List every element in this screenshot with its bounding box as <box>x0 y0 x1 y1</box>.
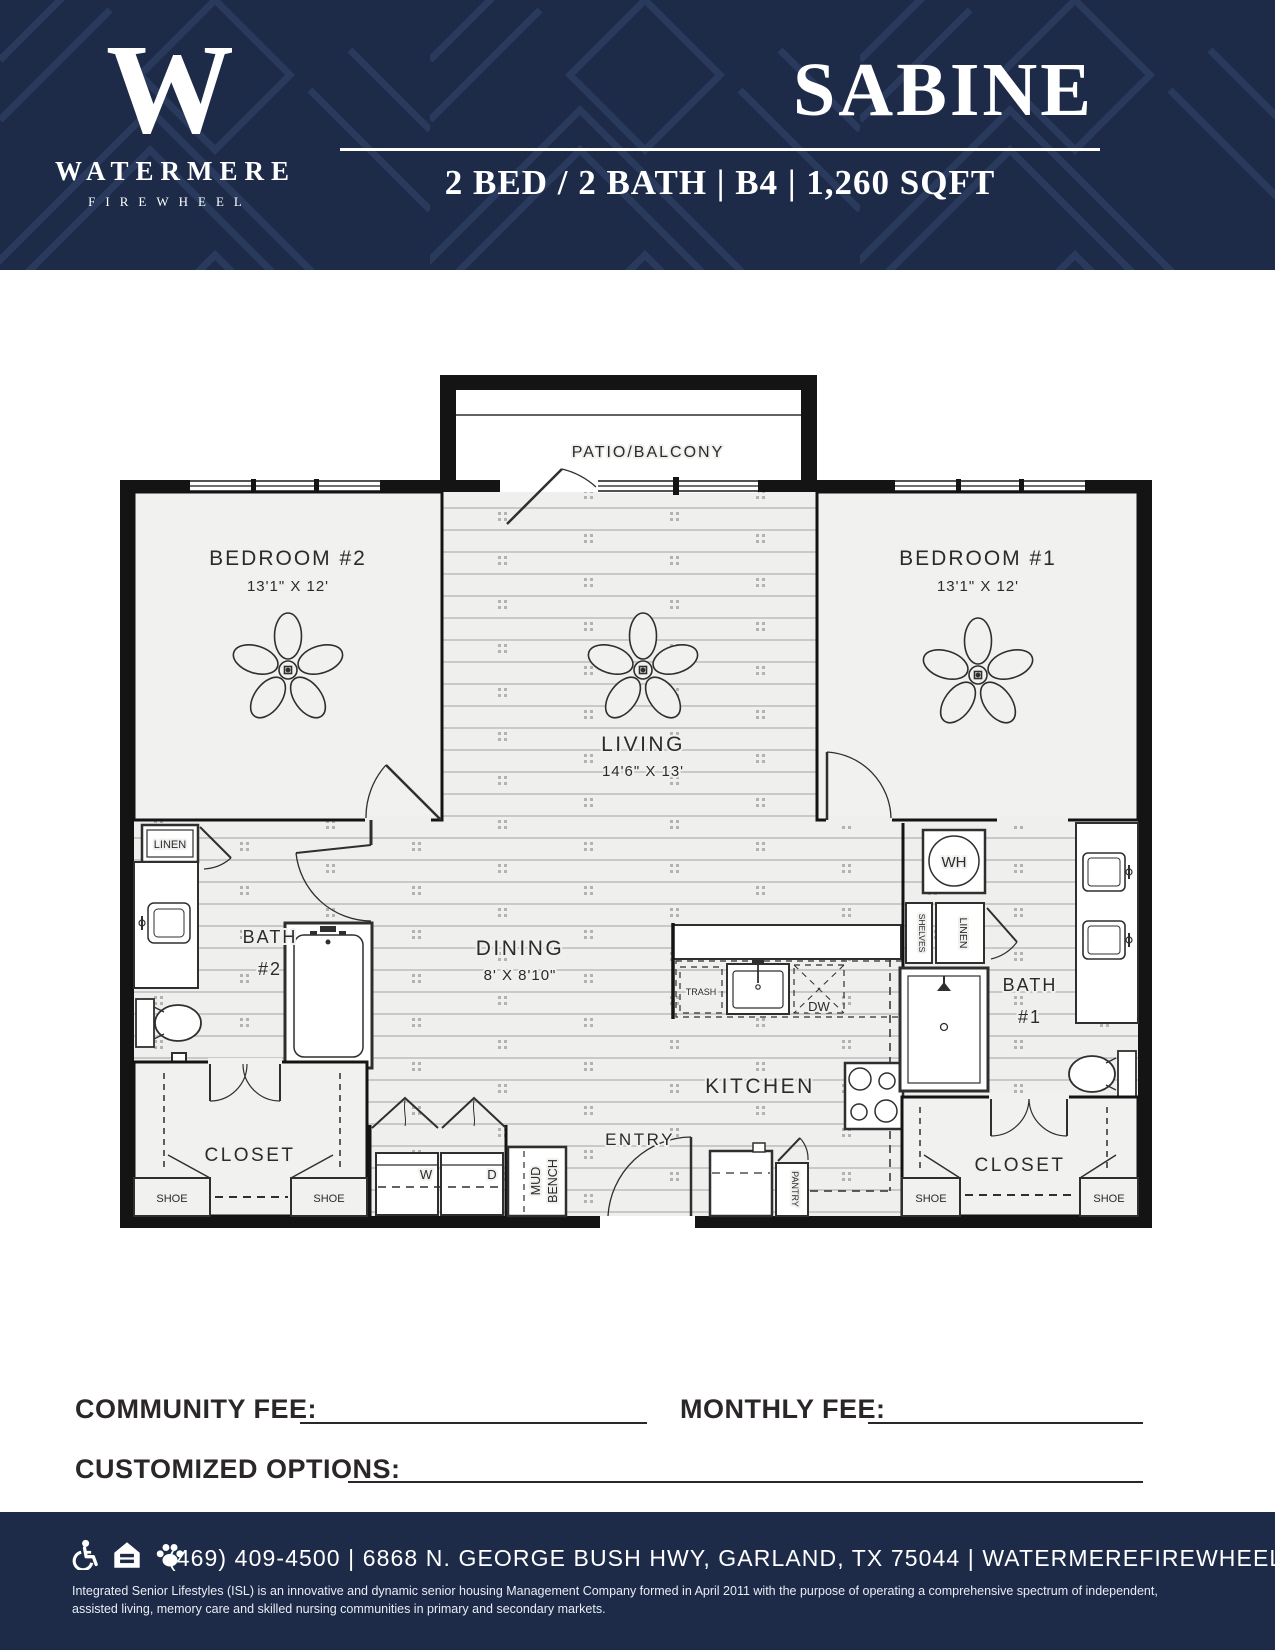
brand-name: WATERMERE <box>55 156 285 187</box>
shower <box>900 968 988 1091</box>
refrigerator <box>710 1143 772 1216</box>
bathtub <box>285 923 372 1068</box>
brand-subname: FIREWHEEL <box>55 194 285 210</box>
bedroom-2: BEDROOM #2 13'1" X 12' <box>134 492 442 824</box>
header-banner: W WATERMERE FIREWHEEL SABINE 2 BED / 2 B… <box>0 0 1275 270</box>
bench-label: BENCH <box>546 1159 560 1203</box>
patio-balcony <box>440 375 817 492</box>
dw-label: DW <box>808 999 830 1014</box>
shoe-label: SHOE <box>1093 1193 1124 1205</box>
wheelchair-icon <box>70 1539 99 1570</box>
equal-housing-icon <box>112 1540 142 1570</box>
community-fee-blank[interactable] <box>300 1422 647 1424</box>
wh-label: WH <box>942 854 967 871</box>
disclaimer-text: Integrated Senior Lifestyles (ISL) is an… <box>72 1582 1164 1618</box>
shelves-label: SHELVES <box>917 914 927 953</box>
kitchen-label: KITCHEN <box>705 1075 815 1098</box>
dryer <box>441 1153 503 1215</box>
plan-specs: 2 BED / 2 BATH | B4 | 1,260 SQFT <box>340 163 1100 203</box>
shoe-label: SHOE <box>313 1193 344 1205</box>
footer-bar: (469) 409-4500 | 6868 N. GEORGE BUSH HWY… <box>0 1512 1275 1650</box>
trash-label: TRASH <box>686 987 717 997</box>
bath1-label: BATH <box>1003 975 1058 995</box>
contact-line: (469) 409-4500 | 6868 N. GEORGE BUSH HWY… <box>168 1545 1275 1572</box>
double-vanity <box>1076 823 1138 1023</box>
washer-label: W <box>420 1167 433 1182</box>
vanity-sink <box>134 862 198 988</box>
bedroom2-dims: 13'1" X 12' <box>247 578 329 595</box>
dining-label: DINING <box>476 937 565 960</box>
community-fee-label: COMMUNITY FEE: <box>75 1394 317 1425</box>
closet-right: CLOSET SHOE SHOE <box>902 1093 1138 1216</box>
closet-left-label: CLOSET <box>204 1145 295 1166</box>
customized-options-blank[interactable] <box>348 1481 1143 1483</box>
brand-logo: W WATERMERE FIREWHEEL <box>55 22 285 210</box>
floor-plan-area: BEDROOM #2 13'1" X 12' BEDROOM #1 13'1" … <box>120 375 1152 1230</box>
bedroom2-label: BEDROOM #2 <box>209 547 367 570</box>
bath1-number: #1 <box>1018 1007 1042 1027</box>
bedroom1-dims: 13'1" X 12' <box>937 578 1019 595</box>
flyer-page: W WATERMERE FIREWHEEL SABINE 2 BED / 2 B… <box>0 0 1275 1650</box>
shoe-label: SHOE <box>156 1193 187 1205</box>
shoe-label: SHOE <box>915 1193 946 1205</box>
closet-right-label: CLOSET <box>974 1155 1065 1176</box>
kitchen-sink <box>727 960 789 1014</box>
bedroom1-label: BEDROOM #1 <box>899 547 1057 570</box>
linen-label: LINEN <box>957 918 969 949</box>
washer <box>376 1153 438 1215</box>
patio-slider-window <box>598 477 758 495</box>
stove <box>845 1063 903 1129</box>
plan-name: SABINE <box>340 52 1100 128</box>
title-block: SABINE 2 BED / 2 BATH | B4 | 1,260 SQFT <box>340 52 1100 203</box>
mud-label: MUD <box>529 1167 543 1195</box>
pantry-label: PANTRY <box>790 1171 800 1207</box>
floor-plan: BEDROOM #2 13'1" X 12' BEDROOM #1 13'1" … <box>120 375 1152 1230</box>
closet-left: CLOSET SHOE SHOE <box>134 1058 367 1216</box>
living-dims: 14'6" X 13' <box>602 763 684 780</box>
bath2-number: #2 <box>258 959 282 979</box>
title-divider <box>340 148 1100 151</box>
logo-monogram: W <box>55 22 285 156</box>
bath2-label: BATH <box>243 927 298 947</box>
dryer-label: D <box>487 1167 496 1182</box>
patio-label: PATIO/BALCONY <box>572 444 725 461</box>
entry-label: ENTRY <box>605 1130 675 1149</box>
water-heater: WH <box>923 830 985 893</box>
linen-label: LINEN <box>154 839 186 851</box>
bedroom-1: BEDROOM #1 13'1" X 12' <box>817 492 1138 824</box>
mud-bench: MUD BENCH <box>508 1147 566 1216</box>
living-label: LIVING <box>601 733 685 756</box>
monthly-fee-blank[interactable] <box>868 1422 1143 1424</box>
monthly-fee-label: MONTHLY FEE: <box>680 1394 886 1425</box>
dining-dims: 8' X 8'10" <box>484 967 557 984</box>
